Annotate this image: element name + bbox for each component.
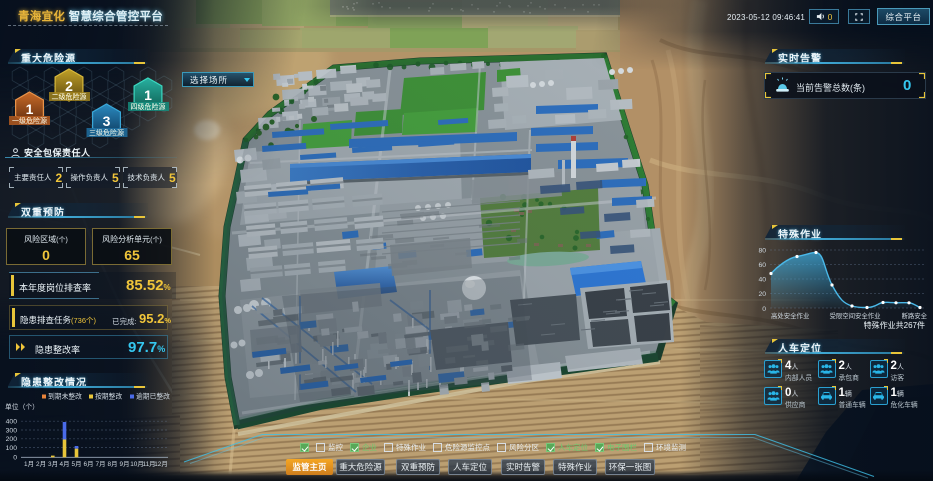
svg-text:四级危险源: 四级危险源 bbox=[131, 102, 166, 111]
svg-text:6月: 6月 bbox=[84, 460, 94, 468]
svg-text:7月: 7月 bbox=[96, 460, 106, 468]
svg-text:按期整改: 按期整改 bbox=[95, 392, 122, 401]
svg-text:20: 20 bbox=[758, 291, 766, 298]
svg-text:4月: 4月 bbox=[60, 460, 70, 468]
svg-text:5月: 5月 bbox=[72, 460, 82, 468]
svg-text:80: 80 bbox=[758, 248, 766, 255]
svg-text:9月: 9月 bbox=[120, 460, 130, 468]
svg-text:60: 60 bbox=[758, 262, 766, 269]
svg-text:2月: 2月 bbox=[36, 460, 46, 468]
svg-text:400: 400 bbox=[6, 419, 18, 426]
svg-text:1月: 1月 bbox=[24, 460, 34, 468]
svg-text:高处安全作业: 高处安全作业 bbox=[771, 311, 810, 320]
svg-text:单位（个）: 单位（个） bbox=[5, 402, 39, 411]
svg-text:1: 1 bbox=[144, 87, 152, 103]
svg-text:3月: 3月 bbox=[48, 460, 58, 468]
svg-text:到期未整改: 到期未整改 bbox=[48, 392, 82, 401]
svg-text:受限空间安全作业: 受限空间安全作业 bbox=[829, 311, 881, 320]
svg-text:300: 300 bbox=[6, 427, 18, 434]
svg-text:8月: 8月 bbox=[108, 460, 118, 468]
svg-text:100: 100 bbox=[6, 445, 18, 452]
svg-text:2: 2 bbox=[65, 78, 73, 94]
svg-text:0: 0 bbox=[762, 306, 766, 313]
svg-text:特殊作业共267件: 特殊作业共267件 bbox=[864, 320, 925, 330]
svg-text:二级危险源: 二级危险源 bbox=[52, 92, 87, 101]
svg-text:三级危险源: 三级危险源 bbox=[89, 128, 124, 137]
svg-text:12月: 12月 bbox=[154, 460, 168, 468]
svg-text:40: 40 bbox=[758, 277, 766, 284]
svg-text:逾期已整改: 逾期已整改 bbox=[136, 392, 170, 401]
svg-text:3: 3 bbox=[103, 113, 111, 129]
svg-text:一级危险源: 一级危险源 bbox=[12, 116, 47, 125]
svg-text:1: 1 bbox=[26, 101, 34, 117]
svg-text:断路安全: 断路安全 bbox=[901, 311, 927, 320]
svg-text:200: 200 bbox=[6, 436, 18, 443]
svg-text:0: 0 bbox=[13, 455, 17, 462]
